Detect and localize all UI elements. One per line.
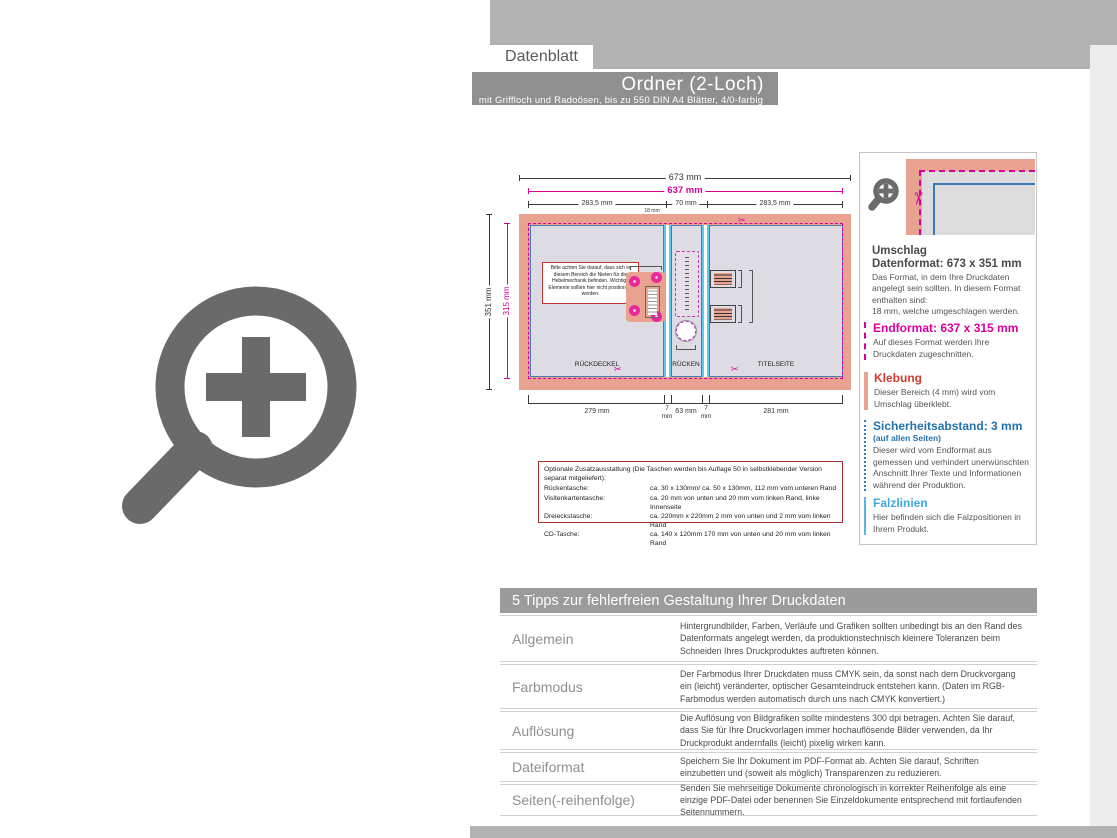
rivet-icon xyxy=(629,276,640,287)
dim-line-bottom xyxy=(528,403,843,404)
klebung-title: Klebung xyxy=(874,372,1032,385)
tip-row-label: Allgemein xyxy=(500,631,680,647)
rivet-dim-line xyxy=(630,266,662,267)
optional-row-value: ca. 30 x 130mm/ ca. 50 x 130mm, 112 mm v… xyxy=(650,484,836,493)
tips-header-label: 5 Tipps zur fehlerfreien Gestaltung Ihre… xyxy=(512,593,846,609)
tip-row-label: Dateiformat xyxy=(500,759,680,775)
dim-fold-left-value: 7 xyxy=(662,406,672,413)
tip-row-seitenreihenfolge: Seiten(-reihenfolge) Senden Sie mehrseit… xyxy=(500,784,1037,816)
zoom-icon xyxy=(866,176,904,220)
tip-row-label: Farbmodus xyxy=(500,679,680,695)
rivet-note-box: Bitte achten Sie darauf, dass sich in di… xyxy=(542,262,639,304)
dim-spine-top: 70 mm xyxy=(672,200,699,207)
scissors-icon: ✂ xyxy=(614,365,622,374)
hole-dim-line-3 xyxy=(752,270,753,323)
hole-dim-line-1 xyxy=(741,270,742,288)
dim-right-half: 283,5 mm xyxy=(756,200,793,207)
datenformat-title: Datenformat: 673 x 351 mm xyxy=(872,258,1022,270)
griphole-dim-line xyxy=(676,349,696,350)
hole-marker-top xyxy=(710,270,736,288)
optional-row-value: ca. 140 x 120mm 170 mm von unten und 20 … xyxy=(650,530,837,548)
tips-header-bar: 5 Tipps zur fehlerfreien Gestaltung Ihre… xyxy=(500,588,1037,613)
endformat-body: Auf dieses Format werden Ihre Druckdaten… xyxy=(873,337,1032,360)
klebung-section: Klebung Dieser Bereich (4 mm) wird vom U… xyxy=(864,372,1032,410)
dim-fold-right-unit: mm xyxy=(698,414,715,421)
top-band-lower xyxy=(593,45,1090,69)
rivet-icon xyxy=(629,305,640,316)
tip-row-label: Auflösung xyxy=(500,723,680,739)
dim-back: 279 mm xyxy=(581,408,612,415)
tip-row-text: Der Farbmodus Ihrer Druckdaten muss CMYK… xyxy=(680,668,1037,705)
sicherheitsabstand-section: Sicherheitsabstand: 3 mm (auf allen Seit… xyxy=(864,420,1032,491)
panel-front-label: TITELSEITE xyxy=(758,362,794,369)
hole-dim-line-2 xyxy=(741,305,742,323)
dim-total-height: 351 mm xyxy=(485,286,493,319)
spine-text-placeholder xyxy=(685,257,689,311)
datasheet-page: Datenblatt Ordner (2-Loch) mit Griffloch… xyxy=(0,0,1117,838)
optional-row: Dreieckstasche: ca. 220mm x 220mm 2 mm v… xyxy=(544,512,837,530)
tip-row-text: Speichern Sie Ihr Dokument im PDF-Format… xyxy=(680,755,1037,780)
lever-mechanism xyxy=(645,286,660,318)
endformat-section: Endformat: 637 x 315 mm Auf dieses Forma… xyxy=(864,322,1032,360)
dim-front: 281 mm xyxy=(760,408,791,415)
scissors-icon: ✂ xyxy=(738,216,746,225)
sicherheitsabstand-title: Sicherheitsabstand: 3 mm xyxy=(873,420,1032,433)
falzlinien-section: Falzlinien Hier befinden sich die Falzpo… xyxy=(864,497,1032,535)
grip-hole xyxy=(676,321,696,341)
dim-end-height: 315 mm xyxy=(503,285,511,318)
right-margin-strip xyxy=(1090,0,1117,838)
datenformat-body: Das Format, in dem Ihre Druckdaten angel… xyxy=(872,272,1028,318)
tip-row-aufloesung: Auflösung Die Auflösung von Bildgrafiken… xyxy=(500,711,1037,750)
optional-intro: Optionale Zusatzausstattung (Die Taschen… xyxy=(544,465,837,483)
klebung-body: Dieser Bereich (4 mm) wird vom Umschlag … xyxy=(874,387,1032,410)
dim-end-width: 637 mm xyxy=(664,186,705,196)
endformat-title: Endformat: 637 x 315 mm xyxy=(873,322,1032,335)
bottom-band xyxy=(470,826,1117,838)
tip-row-allgemein: Allgemein Hintergrundbilder, Farben, Ver… xyxy=(500,615,1037,662)
product-title-bar: Ordner (2-Loch) mit Griffloch und Radoös… xyxy=(472,72,778,105)
datasheet-tab-label: Datenblatt xyxy=(505,48,578,66)
scissors-icon: ✂ xyxy=(910,191,927,205)
optional-row-label: CD-Tasche: xyxy=(544,530,650,548)
tip-row-dateiformat: Dateiformat Speichern Sie Ihr Dokument i… xyxy=(500,752,1037,782)
sicherheitsabstand-subtitle: (auf allen Seiten) xyxy=(873,433,1032,443)
optional-row-label: Rückentasche: xyxy=(544,484,650,493)
optional-row-value: ca. 20 mm von unten und 20 mm vom linken… xyxy=(650,494,837,512)
tip-row-text: Hintergrundbilder, Farben, Verläufe und … xyxy=(680,620,1037,657)
top-band xyxy=(490,0,1117,45)
optional-row: CD-Tasche: ca. 140 x 120mm 170 mm von un… xyxy=(544,530,837,548)
optional-row: Rückentasche: ca. 30 x 130mm/ ca. 50 x 1… xyxy=(544,484,837,493)
magnifier-logo-icon xyxy=(118,282,368,552)
product-title: Ordner (2-Loch) xyxy=(621,74,764,96)
dim-flap: 18 mm xyxy=(641,209,662,214)
optional-row-value: ca. 220mm x 220mm 2 mm von unten und 2 m… xyxy=(650,512,837,530)
panel-back-label: RÜCKDECKEL xyxy=(575,362,619,369)
dim-total-width: 673 mm xyxy=(666,173,705,182)
dim-spine-bottom: 63 mm xyxy=(672,408,699,415)
optional-row-label: Dreieckstasche: xyxy=(544,512,650,530)
rivet-icon xyxy=(651,272,662,283)
falzlinien-title: Falzlinien xyxy=(873,497,1032,510)
umschlag-title: Umschlag xyxy=(872,245,927,257)
hole-marker-bottom xyxy=(710,305,736,323)
falzlinien-body: Hier befinden sich die Falzpositionen in… xyxy=(873,512,1032,535)
dim-fold-right-value: 7 xyxy=(701,406,711,413)
dim-left-half: 283,5 mm xyxy=(578,200,615,207)
tip-row-farbmodus: Farbmodus Der Farbmodus Ihrer Druckdaten… xyxy=(500,664,1037,709)
optional-equipment-box: Optionale Zusatzausstattung (Die Taschen… xyxy=(538,461,843,523)
datasheet-tab: Datenblatt xyxy=(490,45,593,69)
tip-row-text: Senden Sie mehrseitige Dokumente chronol… xyxy=(680,782,1037,819)
sicherheitsabstand-body: Dieser wird vom Endformat aus gemessen u… xyxy=(873,445,1032,491)
optional-row: Visitenkartentasche: ca. 20 mm von unten… xyxy=(544,494,837,512)
detail-safety-line xyxy=(933,183,1035,235)
scissors-icon: ✂ xyxy=(731,365,739,374)
tip-row-text: Die Auflösung von Bildgrafiken sollte mi… xyxy=(680,712,1037,749)
optional-row-label: Visitenkartentasche: xyxy=(544,494,650,512)
tip-row-label: Seiten(-reihenfolge) xyxy=(500,792,680,808)
spine-label-area xyxy=(675,251,699,317)
product-subtitle: mit Griffloch und Radoösen, bis zu 550 D… xyxy=(472,95,770,106)
panel-spine-label: RÜCKEN xyxy=(672,362,699,369)
